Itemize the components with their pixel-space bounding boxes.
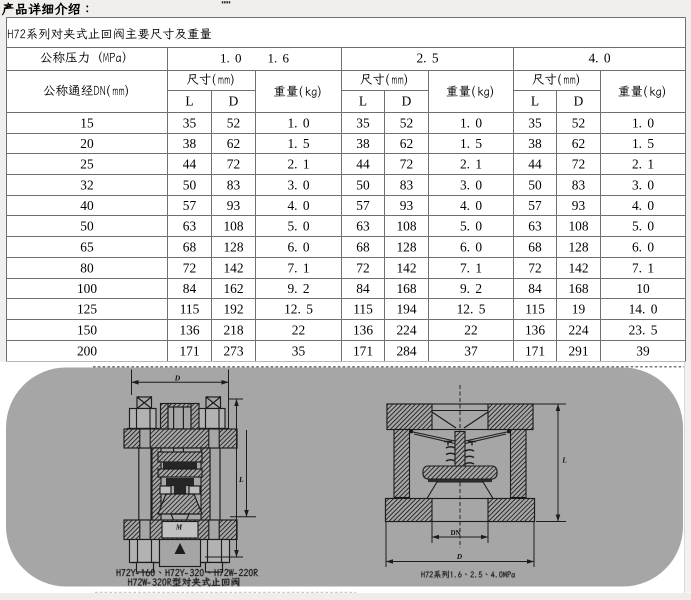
svg-text:22: 22 (292, 322, 305, 337)
svg-text:44: 44 (183, 156, 197, 171)
svg-text:L: L (531, 94, 539, 109)
svg-text:125: 125 (77, 301, 97, 316)
svg-text:23. 5: 23. 5 (629, 322, 658, 337)
svg-text:142: 142 (223, 260, 243, 275)
svg-text:7. 1: 7. 1 (460, 260, 482, 275)
svg-text:1. 0: 1. 0 (287, 115, 309, 130)
svg-text:D: D (456, 553, 463, 561)
svg-text:1. 0: 1. 0 (632, 115, 654, 130)
svg-text:1. 5: 1. 5 (460, 136, 482, 151)
svg-text:25: 25 (80, 156, 94, 171)
svg-text:57: 57 (183, 198, 197, 213)
svg-text:35: 35 (292, 343, 306, 358)
svg-text:38: 38 (528, 136, 542, 151)
svg-text:7. 1: 7. 1 (287, 260, 309, 275)
svg-text:4. 0: 4. 0 (632, 198, 654, 213)
svg-text:80: 80 (80, 260, 94, 275)
svg-text:162: 162 (223, 281, 243, 296)
svg-text:83: 83 (227, 177, 241, 192)
svg-text:218: 218 (223, 322, 243, 337)
svg-text:9. 2: 9. 2 (287, 281, 309, 296)
svg-text:2. 5: 2. 5 (416, 51, 438, 66)
svg-text:128: 128 (223, 239, 243, 254)
svg-text:142: 142 (568, 260, 588, 275)
svg-text:37: 37 (464, 343, 478, 358)
svg-text:6. 0: 6. 0 (287, 239, 309, 254)
svg-text:150: 150 (77, 322, 97, 337)
svg-text:63: 63 (528, 218, 542, 233)
svg-text:50: 50 (356, 177, 370, 192)
svg-text:115: 115 (525, 301, 545, 316)
svg-text:7. 1: 7. 1 (632, 260, 654, 275)
svg-text:291: 291 (568, 343, 588, 358)
svg-text:108: 108 (223, 218, 243, 233)
svg-text:192: 192 (223, 301, 243, 316)
svg-text:L: L (359, 94, 367, 109)
svg-text:115: 115 (353, 301, 373, 316)
svg-text:L: L (238, 475, 244, 484)
svg-text:84: 84 (356, 281, 370, 296)
svg-text:52: 52 (400, 115, 413, 130)
svg-text:1. 0: 1. 0 (460, 115, 482, 130)
svg-text:68: 68 (183, 239, 197, 254)
svg-text:D: D (402, 94, 412, 109)
svg-text:D: D (174, 374, 181, 383)
svg-text:57: 57 (356, 198, 370, 213)
svg-text:108: 108 (568, 218, 588, 233)
svg-text:1. 5: 1. 5 (632, 136, 654, 151)
svg-text:52: 52 (227, 115, 240, 130)
svg-text:65: 65 (80, 239, 94, 254)
svg-text:224: 224 (568, 322, 588, 337)
svg-text:128: 128 (568, 239, 588, 254)
svg-text:4. 0: 4. 0 (287, 198, 309, 213)
svg-text:142: 142 (396, 260, 416, 275)
svg-text:72: 72 (572, 156, 585, 171)
svg-text:10: 10 (636, 281, 650, 296)
svg-text:171: 171 (525, 343, 545, 358)
svg-text:171: 171 (353, 343, 373, 358)
svg-text:L: L (185, 94, 193, 109)
svg-text:L: L (561, 456, 567, 465)
svg-text:50: 50 (183, 177, 197, 192)
svg-text:84: 84 (528, 281, 542, 296)
svg-text:168: 168 (396, 281, 416, 296)
svg-text:20: 20 (80, 136, 94, 151)
svg-text:DN: DN (451, 530, 461, 537)
svg-text:4. 0: 4. 0 (588, 51, 610, 66)
svg-text:115: 115 (180, 301, 200, 316)
svg-text:136: 136 (525, 322, 545, 337)
svg-text:72: 72 (356, 260, 369, 275)
svg-text:62: 62 (400, 136, 413, 151)
svg-text:1. 5: 1. 5 (287, 136, 309, 151)
svg-text:224: 224 (396, 322, 416, 337)
svg-text:38: 38 (356, 136, 370, 151)
svg-text:D: D (229, 94, 239, 109)
svg-text:5. 0: 5. 0 (460, 218, 482, 233)
svg-text:44: 44 (528, 156, 542, 171)
svg-text:72: 72 (183, 260, 196, 275)
svg-text:72: 72 (227, 156, 240, 171)
svg-text:3. 0: 3. 0 (460, 177, 482, 192)
svg-text:M: M (175, 524, 183, 532)
svg-text:14. 0: 14. 0 (629, 301, 658, 316)
svg-text:35: 35 (356, 115, 370, 130)
svg-text:284: 284 (396, 343, 416, 358)
svg-text:168: 168 (568, 281, 588, 296)
svg-text:5. 0: 5. 0 (632, 218, 654, 233)
svg-text:200: 200 (77, 343, 97, 358)
svg-text:63: 63 (183, 218, 197, 233)
svg-text:3. 0: 3. 0 (287, 177, 309, 192)
svg-text:6. 0: 6. 0 (460, 239, 482, 254)
svg-text:5. 0: 5. 0 (287, 218, 309, 233)
svg-text:273: 273 (223, 343, 243, 358)
svg-text:15: 15 (80, 115, 94, 130)
svg-text:39: 39 (636, 343, 650, 358)
svg-text:136: 136 (179, 322, 199, 337)
svg-text:93: 93 (227, 198, 241, 213)
svg-text:38: 38 (183, 136, 197, 151)
svg-text:108: 108 (396, 218, 416, 233)
svg-text:50: 50 (528, 177, 542, 192)
svg-text:83: 83 (572, 177, 586, 192)
svg-text:22: 22 (464, 322, 477, 337)
svg-text:D: D (574, 94, 584, 109)
svg-text:128: 128 (396, 239, 416, 254)
svg-text:4. 0: 4. 0 (460, 198, 482, 213)
svg-text:3. 0: 3. 0 (632, 177, 654, 192)
svg-text:50: 50 (80, 218, 94, 233)
svg-text:62: 62 (227, 136, 240, 151)
svg-text:68: 68 (356, 239, 370, 254)
svg-text:2. 1: 2. 1 (632, 156, 654, 171)
svg-text:194: 194 (396, 301, 416, 316)
svg-text:136: 136 (353, 322, 373, 337)
svg-text:93: 93 (400, 198, 414, 213)
svg-text:40: 40 (80, 198, 94, 213)
svg-text:1. 0 1. 6: 1. 0 1. 6 (220, 51, 289, 66)
svg-text:32: 32 (80, 177, 93, 192)
svg-text:57: 57 (528, 198, 542, 213)
svg-text:6. 0: 6. 0 (632, 239, 654, 254)
svg-text:12. 5: 12. 5 (457, 301, 486, 316)
svg-text:93: 93 (572, 198, 586, 213)
svg-text:2. 1: 2. 1 (287, 156, 309, 171)
svg-text:35: 35 (183, 115, 197, 130)
svg-text:72: 72 (400, 156, 413, 171)
svg-text:44: 44 (356, 156, 370, 171)
svg-text:19: 19 (572, 301, 586, 316)
svg-text:2. 1: 2. 1 (460, 156, 482, 171)
svg-text:35: 35 (528, 115, 542, 130)
svg-text:83: 83 (400, 177, 414, 192)
svg-text:52: 52 (572, 115, 585, 130)
svg-text:100: 100 (77, 281, 97, 296)
svg-text:12. 5: 12. 5 (284, 301, 313, 316)
svg-text:9. 2: 9. 2 (460, 281, 482, 296)
svg-text:68: 68 (528, 239, 542, 254)
svg-text:171: 171 (179, 343, 199, 358)
svg-text:72: 72 (528, 260, 541, 275)
svg-text:63: 63 (356, 218, 370, 233)
svg-text:62: 62 (572, 136, 585, 151)
svg-text:84: 84 (183, 281, 197, 296)
